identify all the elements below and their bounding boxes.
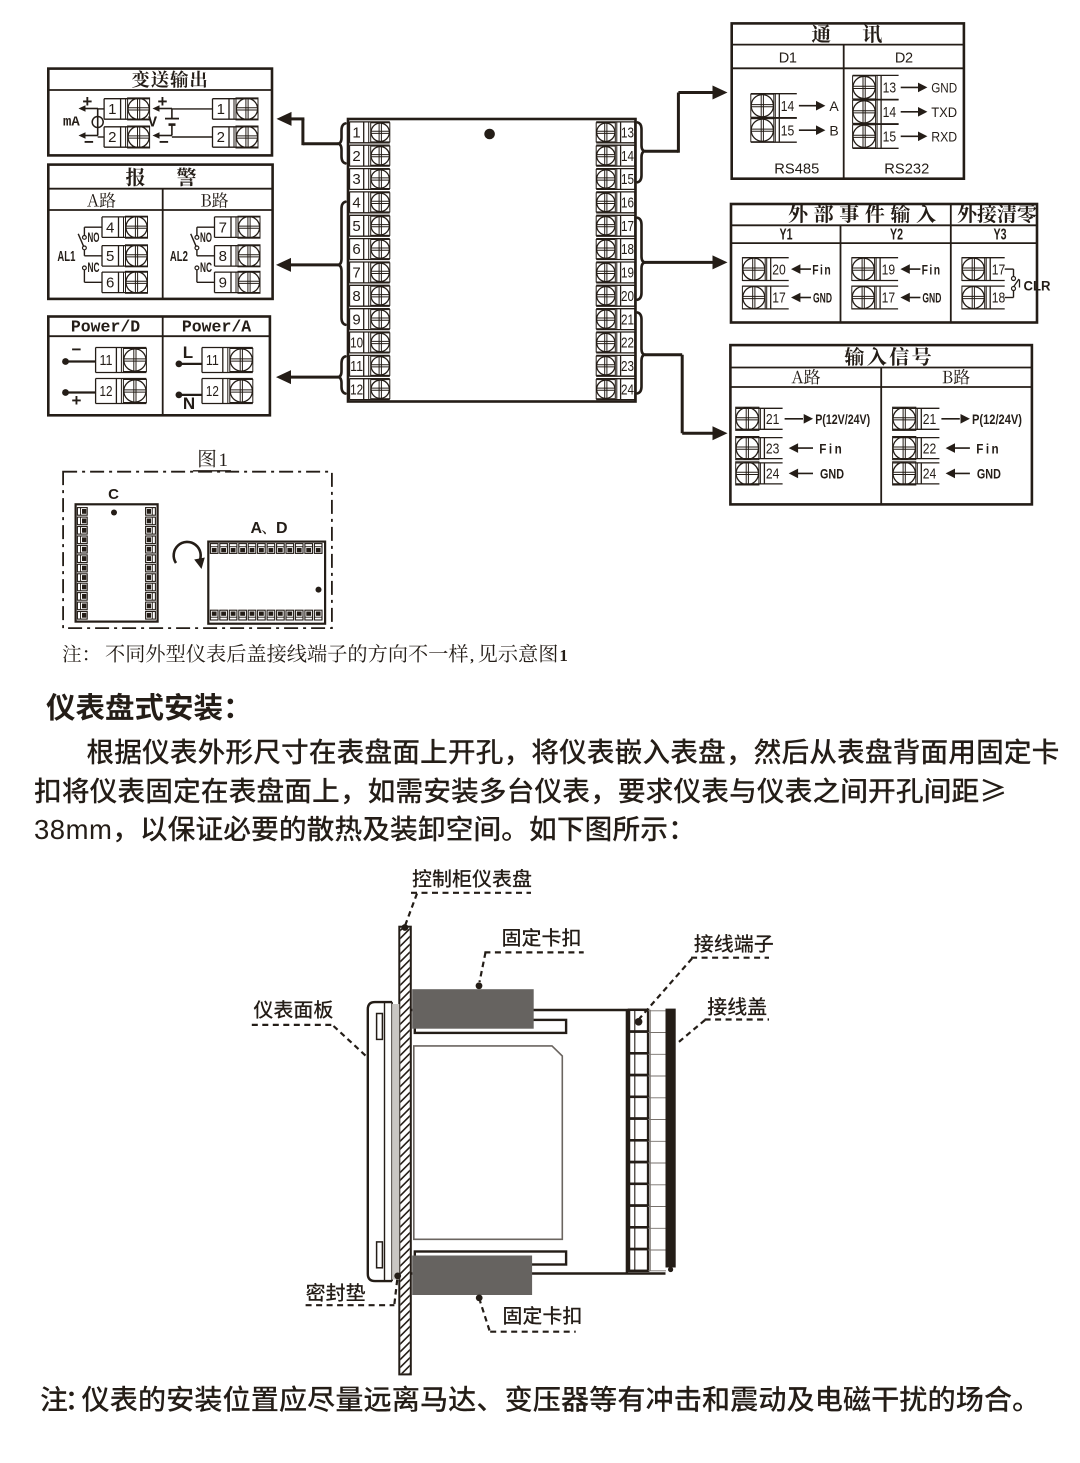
svg-text:1: 1 bbox=[352, 125, 360, 142]
svg-text:6: 6 bbox=[352, 241, 360, 258]
svg-text:Y1: Y1 bbox=[780, 227, 793, 244]
svg-text:22: 22 bbox=[923, 440, 937, 457]
svg-text:14: 14 bbox=[781, 98, 795, 115]
svg-text:11: 11 bbox=[350, 358, 363, 375]
svg-text:19: 19 bbox=[882, 261, 896, 278]
svg-text:GND: GND bbox=[922, 291, 941, 306]
svg-text:GND: GND bbox=[977, 467, 1001, 482]
svg-text:17: 17 bbox=[772, 290, 786, 307]
svg-text:Fin: Fin bbox=[976, 440, 1001, 456]
svg-text:4: 4 bbox=[352, 195, 360, 212]
svg-text:15: 15 bbox=[621, 171, 634, 188]
svg-text:6: 6 bbox=[106, 275, 114, 292]
svg-text:V: V bbox=[148, 115, 157, 132]
svg-text:P(12V/24V): P(12V/24V) bbox=[815, 411, 870, 427]
svg-text:17: 17 bbox=[882, 290, 896, 307]
svg-text:8: 8 bbox=[352, 288, 360, 305]
svg-text:NC: NC bbox=[200, 260, 212, 275]
svg-text:20: 20 bbox=[621, 288, 634, 305]
svg-text:CLR: CLR bbox=[1024, 279, 1051, 294]
svg-text:3: 3 bbox=[352, 171, 360, 188]
svg-text:A: A bbox=[251, 520, 263, 537]
svg-text:11: 11 bbox=[100, 352, 113, 369]
svg-text:18: 18 bbox=[621, 241, 634, 258]
svg-text:20: 20 bbox=[772, 261, 786, 278]
svg-text:13: 13 bbox=[621, 125, 634, 142]
svg-text:D1: D1 bbox=[779, 50, 797, 66]
svg-text:38mm: 38mm bbox=[34, 814, 112, 845]
svg-text:1: 1 bbox=[559, 646, 568, 665]
svg-text:7: 7 bbox=[219, 219, 227, 236]
svg-text:−: − bbox=[72, 340, 82, 359]
svg-text:11: 11 bbox=[206, 352, 219, 369]
svg-text:Y3: Y3 bbox=[994, 227, 1007, 244]
svg-text:2: 2 bbox=[352, 148, 360, 165]
svg-text:N: N bbox=[183, 394, 195, 413]
svg-text:1: 1 bbox=[108, 101, 116, 118]
svg-text:AL2: AL2 bbox=[170, 249, 188, 265]
svg-text:,: , bbox=[470, 649, 474, 665]
svg-text:D: D bbox=[276, 520, 288, 537]
svg-text:P(12/24V): P(12/24V) bbox=[972, 411, 1022, 427]
svg-text:14: 14 bbox=[883, 104, 897, 121]
svg-text:12: 12 bbox=[206, 383, 219, 400]
svg-text:9: 9 bbox=[352, 311, 360, 328]
svg-text:D2: D2 bbox=[895, 50, 913, 66]
svg-text:8: 8 bbox=[219, 248, 227, 265]
svg-text:Fin: Fin bbox=[812, 261, 832, 277]
svg-text:GND: GND bbox=[820, 467, 844, 482]
svg-text:Power/A: Power/A bbox=[182, 318, 251, 337]
svg-text:4: 4 bbox=[106, 219, 114, 236]
svg-text:17: 17 bbox=[992, 261, 1006, 278]
svg-text:Fin: Fin bbox=[922, 261, 942, 277]
svg-text:18: 18 bbox=[992, 290, 1006, 307]
svg-text:RS485: RS485 bbox=[774, 162, 819, 178]
svg-text:2: 2 bbox=[108, 129, 116, 146]
svg-text:12: 12 bbox=[100, 383, 113, 400]
svg-text:14: 14 bbox=[621, 148, 634, 165]
svg-text:21: 21 bbox=[766, 411, 780, 428]
svg-text:1: 1 bbox=[219, 450, 229, 471]
svg-text:+: + bbox=[72, 391, 82, 410]
svg-text:RXD: RXD bbox=[931, 130, 957, 145]
svg-text:10: 10 bbox=[350, 335, 363, 352]
svg-text:GND: GND bbox=[931, 81, 957, 96]
svg-text:24: 24 bbox=[621, 381, 634, 398]
svg-text:TXD: TXD bbox=[931, 105, 957, 120]
svg-text:NO: NO bbox=[88, 230, 100, 245]
svg-text:C: C bbox=[108, 486, 119, 503]
svg-text:5: 5 bbox=[106, 248, 114, 265]
svg-text:NC: NC bbox=[88, 260, 100, 275]
svg-text:13: 13 bbox=[883, 80, 897, 97]
svg-text:21: 21 bbox=[621, 311, 634, 328]
svg-text:23: 23 bbox=[766, 440, 780, 457]
svg-text:L: L bbox=[183, 343, 193, 362]
svg-text:12: 12 bbox=[350, 381, 363, 398]
svg-text:Power/D: Power/D bbox=[71, 318, 140, 337]
svg-text:5: 5 bbox=[352, 218, 360, 235]
svg-text:Y2: Y2 bbox=[890, 227, 903, 244]
svg-text:7: 7 bbox=[352, 265, 360, 282]
svg-text:NO: NO bbox=[200, 230, 212, 245]
svg-text:17: 17 bbox=[621, 218, 634, 235]
svg-text:GND: GND bbox=[813, 291, 832, 306]
svg-text:22: 22 bbox=[621, 335, 634, 352]
svg-text:21: 21 bbox=[923, 411, 937, 428]
svg-text:16: 16 bbox=[621, 195, 634, 212]
svg-text:−: − bbox=[159, 133, 169, 152]
svg-text:15: 15 bbox=[883, 129, 897, 146]
svg-text:A: A bbox=[829, 98, 839, 114]
svg-text:Fin: Fin bbox=[819, 440, 844, 456]
svg-text:24: 24 bbox=[766, 466, 780, 483]
svg-text:24: 24 bbox=[923, 466, 937, 483]
svg-text:AL1: AL1 bbox=[57, 249, 75, 265]
svg-text:23: 23 bbox=[621, 358, 634, 375]
svg-text:−: − bbox=[84, 133, 94, 152]
svg-text:2: 2 bbox=[217, 129, 225, 146]
svg-text:1: 1 bbox=[217, 101, 225, 118]
svg-text:B: B bbox=[829, 122, 838, 138]
svg-text:RS232: RS232 bbox=[884, 162, 929, 178]
svg-text:mA: mA bbox=[63, 115, 80, 131]
svg-text:15: 15 bbox=[781, 122, 795, 139]
svg-text:9: 9 bbox=[219, 275, 227, 292]
svg-text:19: 19 bbox=[621, 265, 634, 282]
